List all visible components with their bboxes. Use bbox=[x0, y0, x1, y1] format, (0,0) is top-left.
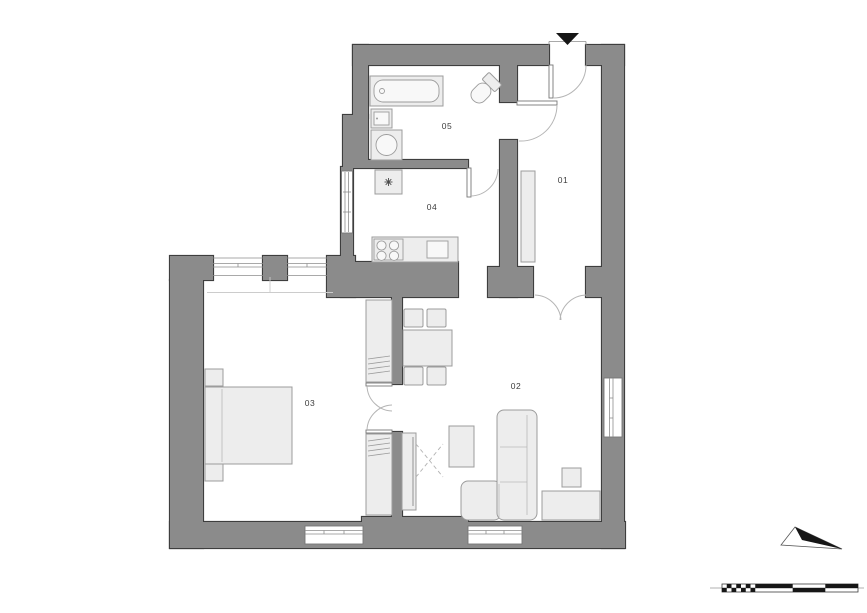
coffee-table bbox=[449, 426, 474, 467]
window-glazing bbox=[342, 171, 353, 233]
bathroom-door bbox=[517, 101, 557, 141]
door-leaf bbox=[549, 65, 553, 98]
door-swing-arc bbox=[367, 386, 392, 411]
dining-set bbox=[403, 309, 452, 385]
sofa-chaise bbox=[461, 481, 501, 520]
kitchen-counter bbox=[372, 237, 458, 262]
dining-chair bbox=[404, 309, 423, 327]
washing-machine bbox=[371, 130, 402, 160]
hall-wardrobe bbox=[521, 171, 535, 262]
hall-living-double-door bbox=[535, 295, 586, 320]
toilet bbox=[467, 72, 502, 107]
sideboard bbox=[542, 491, 600, 520]
dining-table bbox=[403, 330, 452, 366]
stove-burner bbox=[389, 241, 398, 250]
room-label-01: 01 bbox=[558, 175, 568, 185]
stove-burner bbox=[389, 251, 398, 260]
kitchen-sink bbox=[427, 241, 448, 258]
walls-fill-layer bbox=[170, 45, 625, 548]
boiler bbox=[375, 170, 402, 194]
nightstand bbox=[205, 369, 223, 386]
door-swing-arc bbox=[535, 295, 561, 320]
door-leaf bbox=[517, 101, 557, 105]
kitchen-bathroom-door bbox=[467, 168, 498, 197]
window-glazing bbox=[305, 526, 363, 544]
door-swing-arc bbox=[553, 65, 586, 98]
dining-chair bbox=[427, 309, 446, 327]
floor-plan-drawing: 01 02 03 04 05 bbox=[0, 0, 867, 613]
side-table bbox=[562, 468, 581, 487]
door-leaf bbox=[467, 168, 471, 197]
window-bedroom-south bbox=[305, 526, 363, 544]
door-swing-arc bbox=[367, 405, 392, 430]
window-living-south bbox=[468, 526, 522, 544]
north-arrow-icon bbox=[556, 33, 579, 45]
nightstand bbox=[205, 464, 223, 481]
window-glazing bbox=[468, 526, 522, 544]
entrance-door bbox=[549, 65, 586, 98]
bathtub bbox=[370, 76, 443, 106]
stove-burner bbox=[377, 241, 386, 250]
boiler-symbol-icon bbox=[385, 178, 393, 186]
door-swing-arc bbox=[560, 295, 586, 320]
dining-chair bbox=[404, 367, 423, 385]
tall-cabinet-upper bbox=[366, 300, 392, 382]
room-label-05: 05 bbox=[442, 121, 452, 131]
dining-chair bbox=[427, 367, 446, 385]
orientation-arrow-icon bbox=[781, 527, 842, 549]
door-swing-arc bbox=[519, 105, 557, 141]
bedroom-double-door bbox=[366, 383, 392, 433]
sofa-body bbox=[497, 410, 537, 520]
bathroom-sink bbox=[371, 109, 392, 128]
window-kitchen-west bbox=[342, 171, 353, 233]
door-swing-arc bbox=[471, 169, 498, 196]
door-leaf bbox=[366, 383, 392, 386]
scale-bar bbox=[710, 584, 864, 592]
door-leaf bbox=[366, 430, 392, 433]
bed bbox=[205, 387, 292, 464]
room-label-04: 04 bbox=[427, 202, 437, 212]
floor-plan-sheet: 01 02 03 04 05 bbox=[0, 0, 867, 613]
window-living-east bbox=[604, 378, 622, 437]
room-label-03: 03 bbox=[305, 398, 315, 408]
stove-burner bbox=[377, 251, 386, 260]
tv-panel bbox=[402, 433, 443, 510]
room-label-02: 02 bbox=[511, 381, 521, 391]
tall-cabinet-lower bbox=[366, 434, 392, 515]
